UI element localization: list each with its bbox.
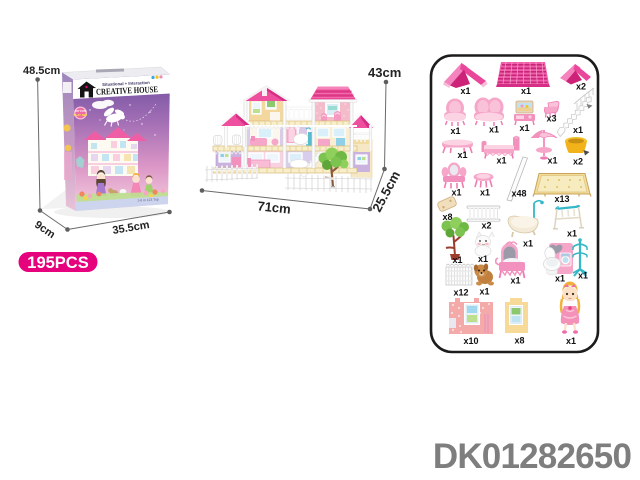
svg-text:x1: x1 bbox=[566, 336, 576, 346]
svg-text:x12: x12 bbox=[453, 288, 468, 298]
svg-text:x2: x2 bbox=[573, 157, 583, 167]
svg-text:x1: x1 bbox=[519, 123, 529, 133]
svg-text:x8: x8 bbox=[514, 336, 524, 346]
svg-text:48.5cm: 48.5cm bbox=[23, 65, 61, 77]
svg-text:x2: x2 bbox=[481, 221, 491, 231]
svg-text:x10: x10 bbox=[463, 336, 478, 346]
svg-text:x2: x2 bbox=[576, 82, 586, 92]
svg-text:x1: x1 bbox=[450, 126, 460, 136]
svg-text:x1: x1 bbox=[573, 125, 583, 135]
svg-text:43cm: 43cm bbox=[368, 65, 401, 80]
svg-text:x1: x1 bbox=[555, 274, 565, 284]
svg-text:x1: x1 bbox=[460, 86, 470, 96]
svg-text:x48: x48 bbox=[511, 189, 526, 199]
svg-text:x1: x1 bbox=[523, 239, 533, 249]
svg-text:x1: x1 bbox=[510, 276, 520, 286]
svg-text:x1: x1 bbox=[478, 254, 488, 264]
svg-text:x13: x13 bbox=[554, 194, 569, 204]
svg-text:x1: x1 bbox=[480, 188, 490, 198]
svg-text:x1: x1 bbox=[521, 86, 531, 96]
svg-text:x1: x1 bbox=[578, 271, 588, 281]
svg-text:DK01282650: DK01282650 bbox=[433, 437, 632, 476]
svg-text:195PCS: 195PCS bbox=[27, 254, 88, 272]
svg-text:x1: x1 bbox=[479, 287, 489, 297]
svg-text:x1: x1 bbox=[452, 255, 462, 265]
svg-text:x1: x1 bbox=[457, 150, 467, 160]
svg-text:x3: x3 bbox=[546, 114, 556, 124]
svg-text:x1: x1 bbox=[489, 125, 499, 135]
svg-text:x1: x1 bbox=[567, 229, 577, 239]
svg-text:PLAY SET: PLAY SET bbox=[74, 113, 88, 117]
svg-text:x1: x1 bbox=[547, 156, 557, 166]
svg-text:x1: x1 bbox=[496, 156, 506, 166]
svg-text:x1: x1 bbox=[451, 188, 461, 198]
